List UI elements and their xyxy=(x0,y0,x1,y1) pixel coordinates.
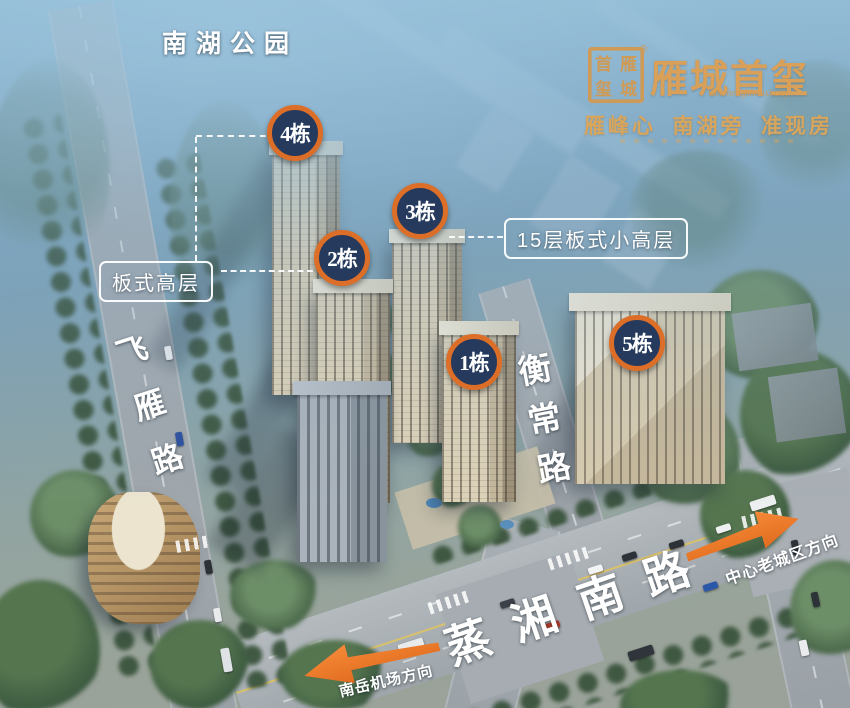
badge-label: 4栋 xyxy=(280,118,310,148)
building-badge-4: 4栋 xyxy=(267,105,323,161)
logo-seal: 首 雁 玺 城 xyxy=(588,47,644,103)
building-badge-2: 2栋 xyxy=(314,230,370,286)
seal-char: 玺 xyxy=(591,75,616,100)
park-label: 南湖公园 xyxy=(162,24,298,60)
registered-mark: ® xyxy=(640,44,647,55)
seal-char: 城 xyxy=(616,75,641,100)
garden-pool xyxy=(426,498,442,508)
round-building xyxy=(88,492,200,624)
neighbor-building xyxy=(731,303,818,372)
badge-label: 3栋 xyxy=(405,196,435,226)
hazy-road xyxy=(317,0,583,155)
seal-char: 雁 xyxy=(616,50,641,75)
seal-char: 首 xyxy=(591,50,616,75)
tagline-subtext xyxy=(620,139,798,143)
badge-label: 1栋 xyxy=(459,347,489,377)
building-badge-5: 5栋 xyxy=(609,315,665,371)
logo-script: Yanchengshouxi city xyxy=(688,88,808,99)
dashed-connector xyxy=(449,236,503,238)
dashed-connector xyxy=(221,270,313,272)
dashed-connector xyxy=(195,137,197,261)
badge-label: 2栋 xyxy=(327,243,357,273)
office-tower xyxy=(297,390,387,562)
callout-slab-midrise: 15层板式小高层 xyxy=(504,218,688,259)
building-badge-1: 1栋 xyxy=(446,334,502,390)
dashed-connector xyxy=(196,135,266,137)
badge-label: 5栋 xyxy=(622,328,652,358)
garden-pool xyxy=(500,520,514,529)
building-badge-3: 3栋 xyxy=(392,183,448,239)
aerial-site-map: 南湖公园 首 雁 玺 城 ® 雁城首玺 Yanchengshouxi city … xyxy=(0,0,850,708)
callout-slab-highrise: 板式高层 xyxy=(99,261,213,302)
neighbor-building xyxy=(768,367,847,442)
logo-tagline: 雁峰心 南湖旁 准现房 xyxy=(584,110,833,140)
